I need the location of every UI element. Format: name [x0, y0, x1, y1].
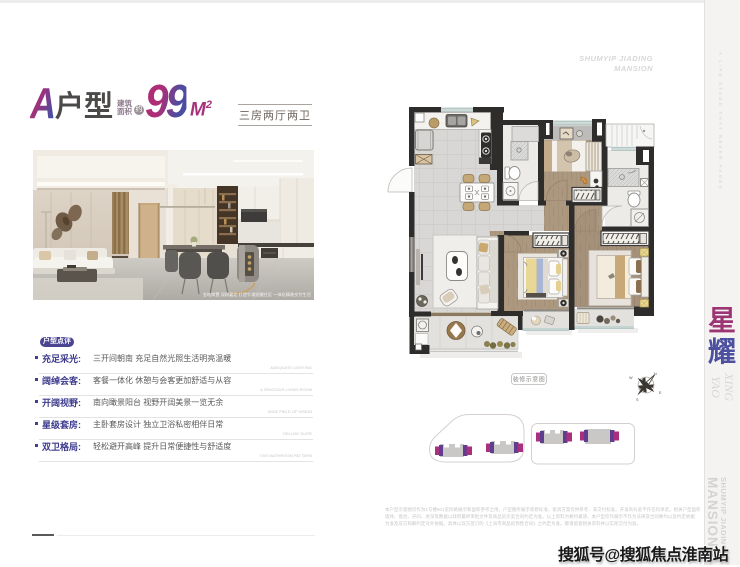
svg-text:W: W	[629, 376, 633, 380]
svg-text:装修示意图: 装修示意图	[513, 375, 546, 383]
svg-text:E: E	[659, 391, 662, 395]
svg-text:N: N	[654, 372, 657, 376]
svg-text:S: S	[636, 398, 639, 402]
svg-text:金地商置 深耕嘉定 打造乍浦觉醒住区 一体化精装交付生活: 金地商置 深耕嘉定 打造乍浦觉醒住区 一体化精装交付生活	[203, 291, 311, 298]
